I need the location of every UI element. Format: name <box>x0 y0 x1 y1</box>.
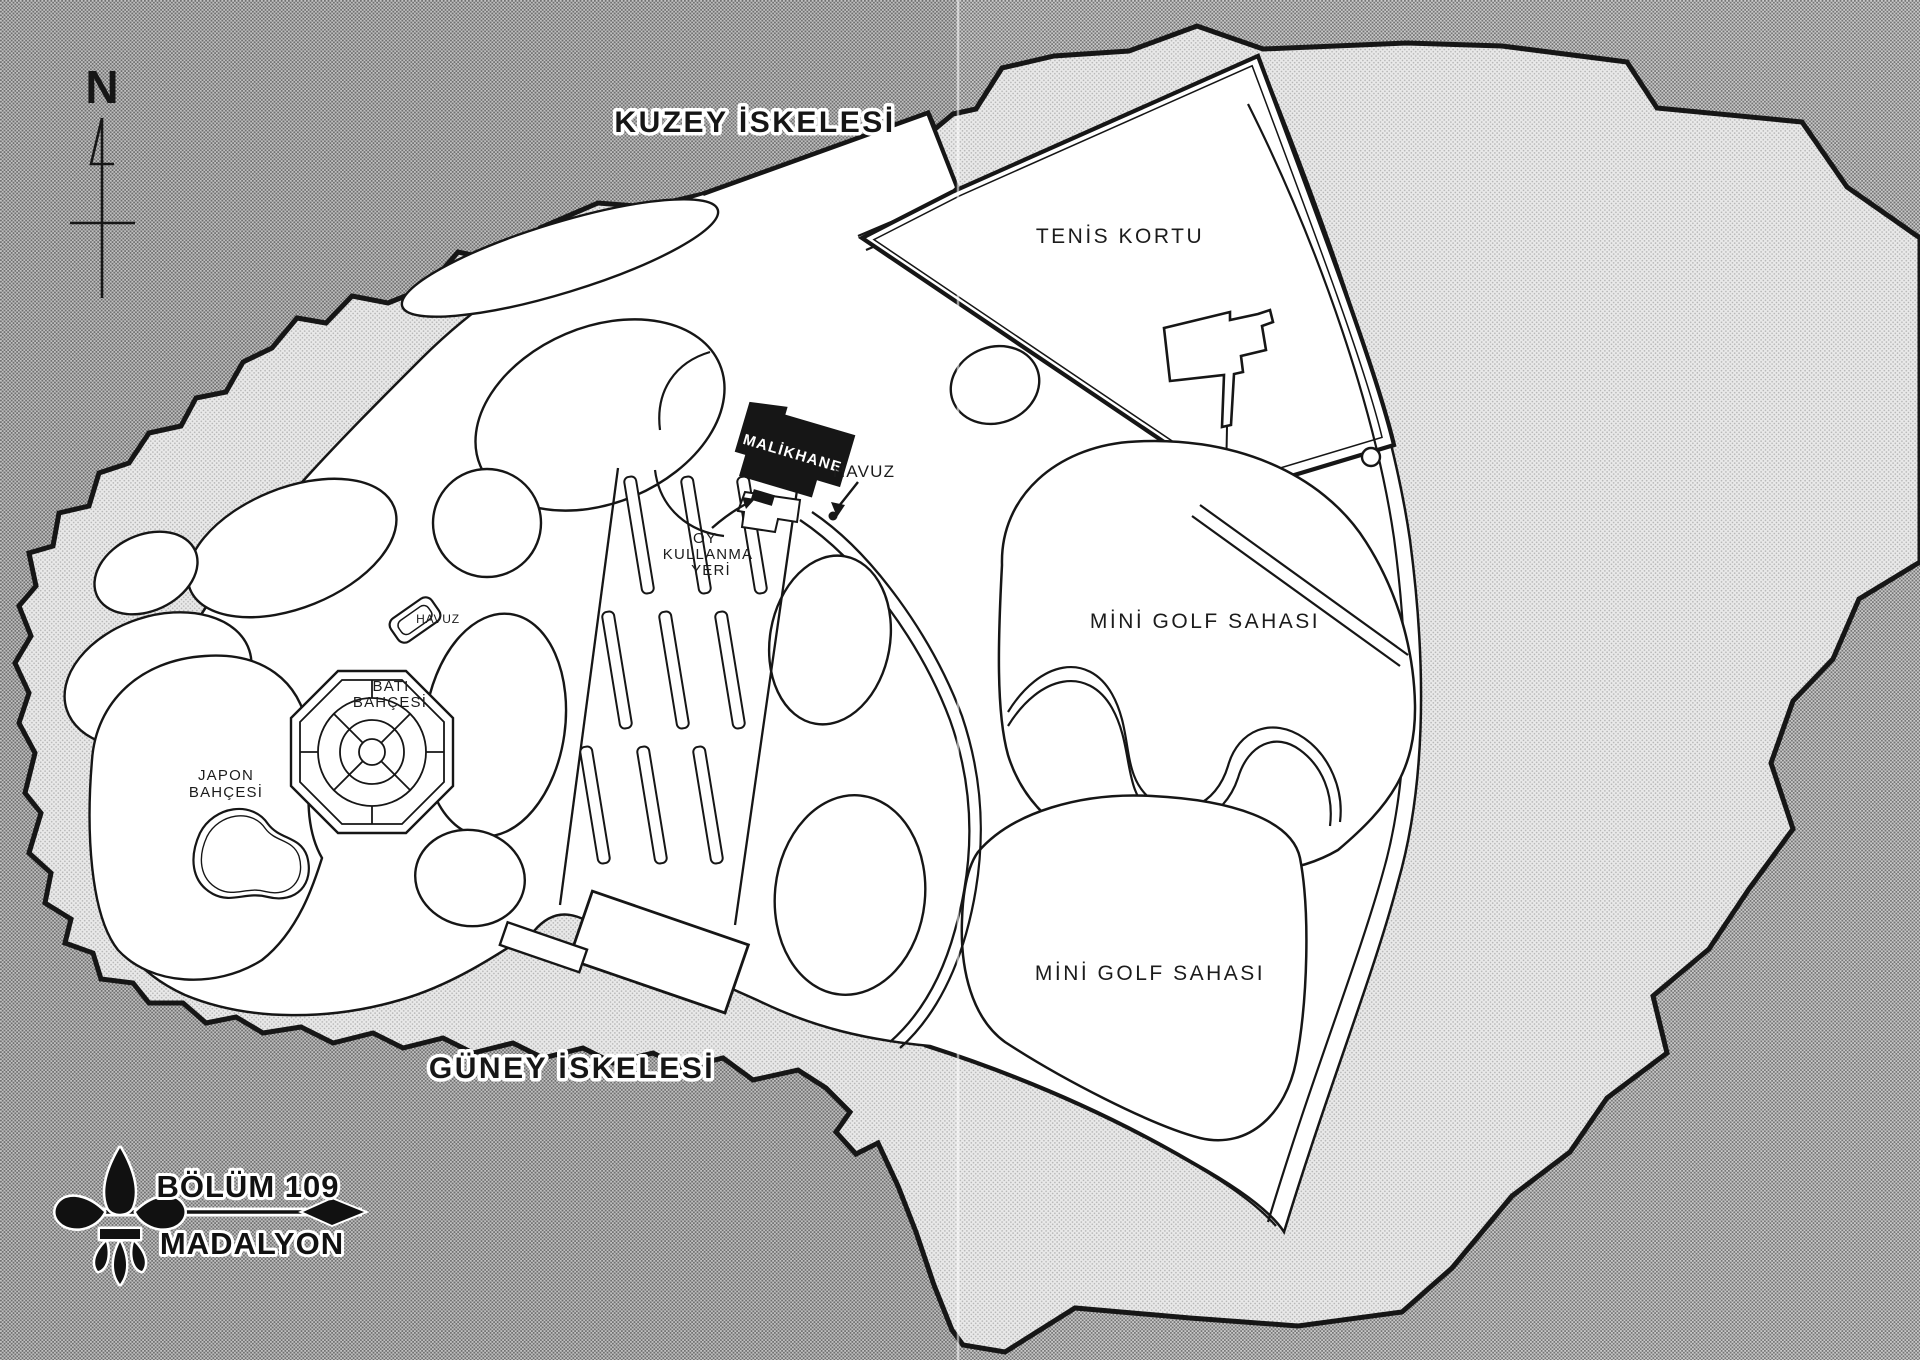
west-pool-label: HAVUZ <box>416 612 460 626</box>
svg-text:KULLANMA: KULLANMA <box>663 546 753 563</box>
minigolf-north-label: MİNİ GOLF SAHASI <box>1090 610 1320 633</box>
svg-text:OY: OY <box>693 530 717 547</box>
south-pier-label: GÜNEY İSKELESİ <box>429 1052 715 1085</box>
manga-map-page: MALİKHANE N KUZEY İSKELESİ GÜNEY İSKELES… <box>0 0 1920 1360</box>
lawn-round <box>433 469 541 577</box>
court-pond <box>1362 448 1380 466</box>
island-map: MALİKHANE N KUZEY İSKELESİ GÜNEY İSKELES… <box>0 0 1920 1360</box>
japanese-garden-region <box>90 656 322 980</box>
svg-text:BAHÇESİ: BAHÇESİ <box>353 693 427 711</box>
minigolf-south-label: MİNİ GOLF SAHASI <box>1035 962 1265 985</box>
main-pool-label: HAVUZ <box>833 462 895 481</box>
chapter-title: MADALYON <box>160 1226 344 1261</box>
svg-text:YERİ: YERİ <box>691 561 731 579</box>
north-pier-label: KUZEY İSKELESİ <box>614 106 895 139</box>
compass-n-label: N <box>85 61 118 113</box>
svg-text:JAPON: JAPON <box>198 767 254 784</box>
japanese-garden-label: JAPON BAHÇESİ <box>189 767 263 801</box>
svg-text:BATI: BATI <box>372 678 409 695</box>
svg-text:BAHÇESİ: BAHÇESİ <box>189 783 263 801</box>
chapter-number: BÖLÜM 109 <box>157 1169 340 1204</box>
tennis-court-label: TENİS KORTU <box>1036 225 1204 248</box>
